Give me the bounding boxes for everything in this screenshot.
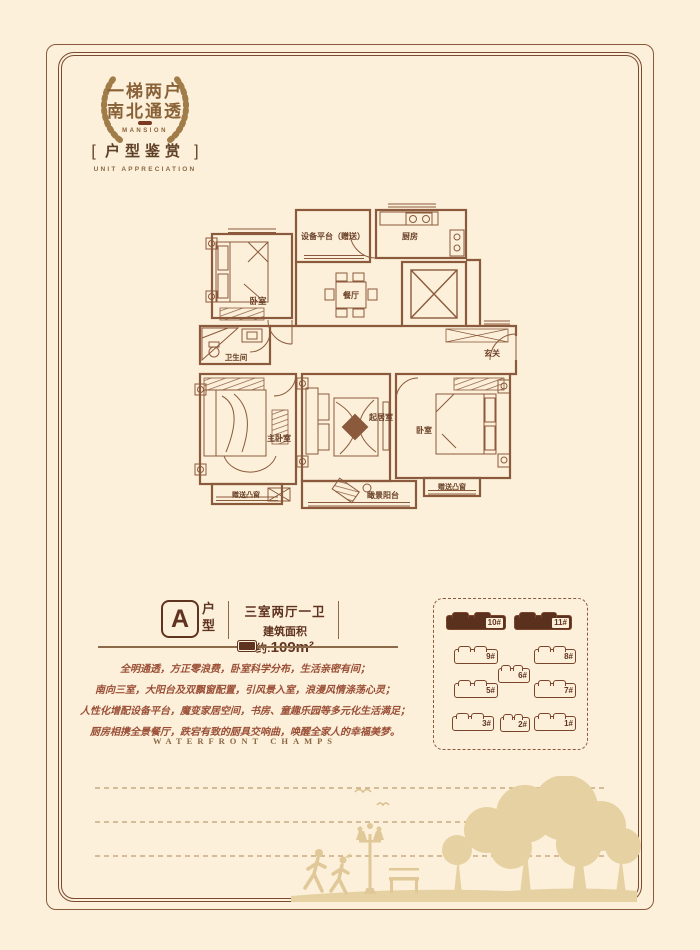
park-silhouette-icon <box>59 776 641 902</box>
badge-line2: 南北通透 <box>92 97 198 122</box>
building-label: 7# <box>562 686 575 696</box>
siteplan-building: 8# <box>534 649 576 664</box>
unit-info: A 户型 三室两厅一卫 建筑面积约:109m² <box>95 600 407 644</box>
siteplan-building: 5# <box>454 683 498 698</box>
building-label: 1# <box>562 719 575 729</box>
street-lamp-icon <box>356 823 384 894</box>
room-label-master: 主卧室 <box>267 433 291 443</box>
laurel-badge: 一梯两户 南北通透 MANSION <box>92 68 198 148</box>
room-label-living: 起居室 <box>368 412 393 422</box>
room-label-equipment: 设备平台（赠送） <box>301 231 365 241</box>
bottom-scene <box>59 776 641 902</box>
siteplan-building: 7# <box>534 683 576 698</box>
room-label-bedroom1: 卧室 <box>249 296 267 306</box>
unit-type-label: 户型 <box>202 600 217 634</box>
divider-ornament <box>239 642 255 650</box>
room-label-dining: 餐厅 <box>342 290 359 300</box>
room-label-kitchen: 厨房 <box>402 231 418 241</box>
description-line: 南向三室，大阳台及双飘窗配置，引风景入室，浪漫风情涤荡心灵； <box>75 680 415 701</box>
horizontal-divider <box>98 646 398 648</box>
building-label: 6# <box>516 671 529 681</box>
siteplan-building: 2# <box>500 717 530 732</box>
siteplan-building: 6# <box>498 668 530 683</box>
unit-letter: A <box>161 600 199 638</box>
divider-vertical <box>228 601 229 639</box>
brochure-page: 一梯两户 南北通透 MANSION [ 户型鉴赏 ] UNIT APPRECIA… <box>0 0 700 950</box>
trees-icon <box>291 776 641 902</box>
building-label: 5# <box>484 686 497 696</box>
section-title: [ 户型鉴赏 ] UNIT APPRECIATION <box>78 140 212 173</box>
footer-english-slogan: WATERFRONT CHAMPS <box>95 736 395 746</box>
building-label: 10# <box>485 617 504 629</box>
room-label-entry: 玄关 <box>484 348 500 358</box>
birds-icon <box>355 790 389 806</box>
siteplan-building: 11# <box>514 615 572 630</box>
building-label: 8# <box>562 652 575 662</box>
floorplan: 卧室 设备平台（赠送） 餐厅 厨房 玄关 卫生间 主卧室 起居室 卧室 赠送凸窗… <box>184 196 544 526</box>
bracket-left: [ <box>91 143 95 160</box>
badge-subtitle: MANSION <box>92 128 198 134</box>
description-line: 人性化增配设备平台，魔变家居空间，书房、童趣乐园等多元化生活满足； <box>75 701 415 722</box>
siteplan-building: 9# <box>454 649 498 664</box>
bench-icon <box>389 868 419 893</box>
building-label: 3# <box>480 719 493 729</box>
room-label-bay-right: 赠送凸窗 <box>438 482 466 491</box>
room-label-bedroom2: 卧室 <box>416 425 432 435</box>
siteplan-building: 10# <box>446 615 506 630</box>
siteplan-box: 10#11#9#8#6#5#7#3#2#1# <box>433 598 588 750</box>
siteplan-building: 3# <box>452 716 494 731</box>
description-line: 全明通透，方正零浪费，卧室科学分布，生活亲密有间； <box>75 659 415 680</box>
section-title-text: 户型鉴赏 <box>105 143 185 160</box>
building-label: 11# <box>551 617 570 629</box>
bracket-right: ] <box>194 143 198 160</box>
joggers-icon <box>305 858 348 893</box>
building-label: 2# <box>516 720 529 730</box>
room-label-bay-left: 赠送凸窗 <box>232 490 260 499</box>
room-label-bathroom: 卫生间 <box>225 352 248 362</box>
room-label-balcony: 瞰景阳台 <box>367 490 399 500</box>
badge-script-ornament <box>138 121 152 125</box>
floorplan-drawing-icon: 卧室 设备平台（赠送） 餐厅 厨房 玄关 卫生间 主卧室 起居室 卧室 赠送凸窗… <box>184 196 544 526</box>
siteplan-building: 1# <box>534 716 576 731</box>
building-label: 9# <box>484 652 497 662</box>
description-text: 全明通透，方正零浪费，卧室科学分布，生活亲密有间； 南向三室，大阳台及双飘窗配置… <box>75 659 415 743</box>
divider-vertical <box>338 601 339 639</box>
unit-spec-rooms: 三室两厅一卫 <box>235 601 335 620</box>
section-subtitle: UNIT APPRECIATION <box>78 166 212 173</box>
